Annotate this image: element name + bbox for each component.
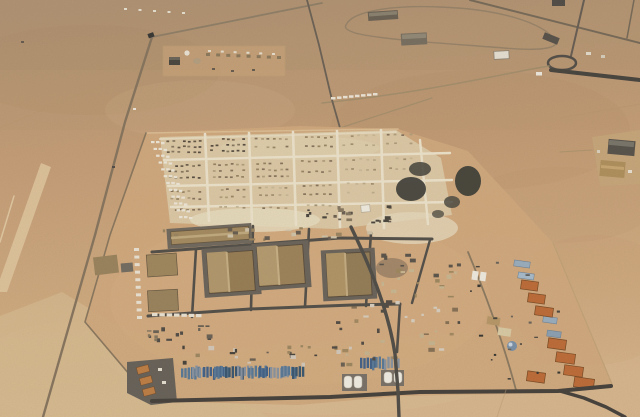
- film-grain: [0, 0, 640, 417]
- aerial-photo-canvas: [0, 0, 640, 417]
- aerial-photo: [0, 0, 640, 417]
